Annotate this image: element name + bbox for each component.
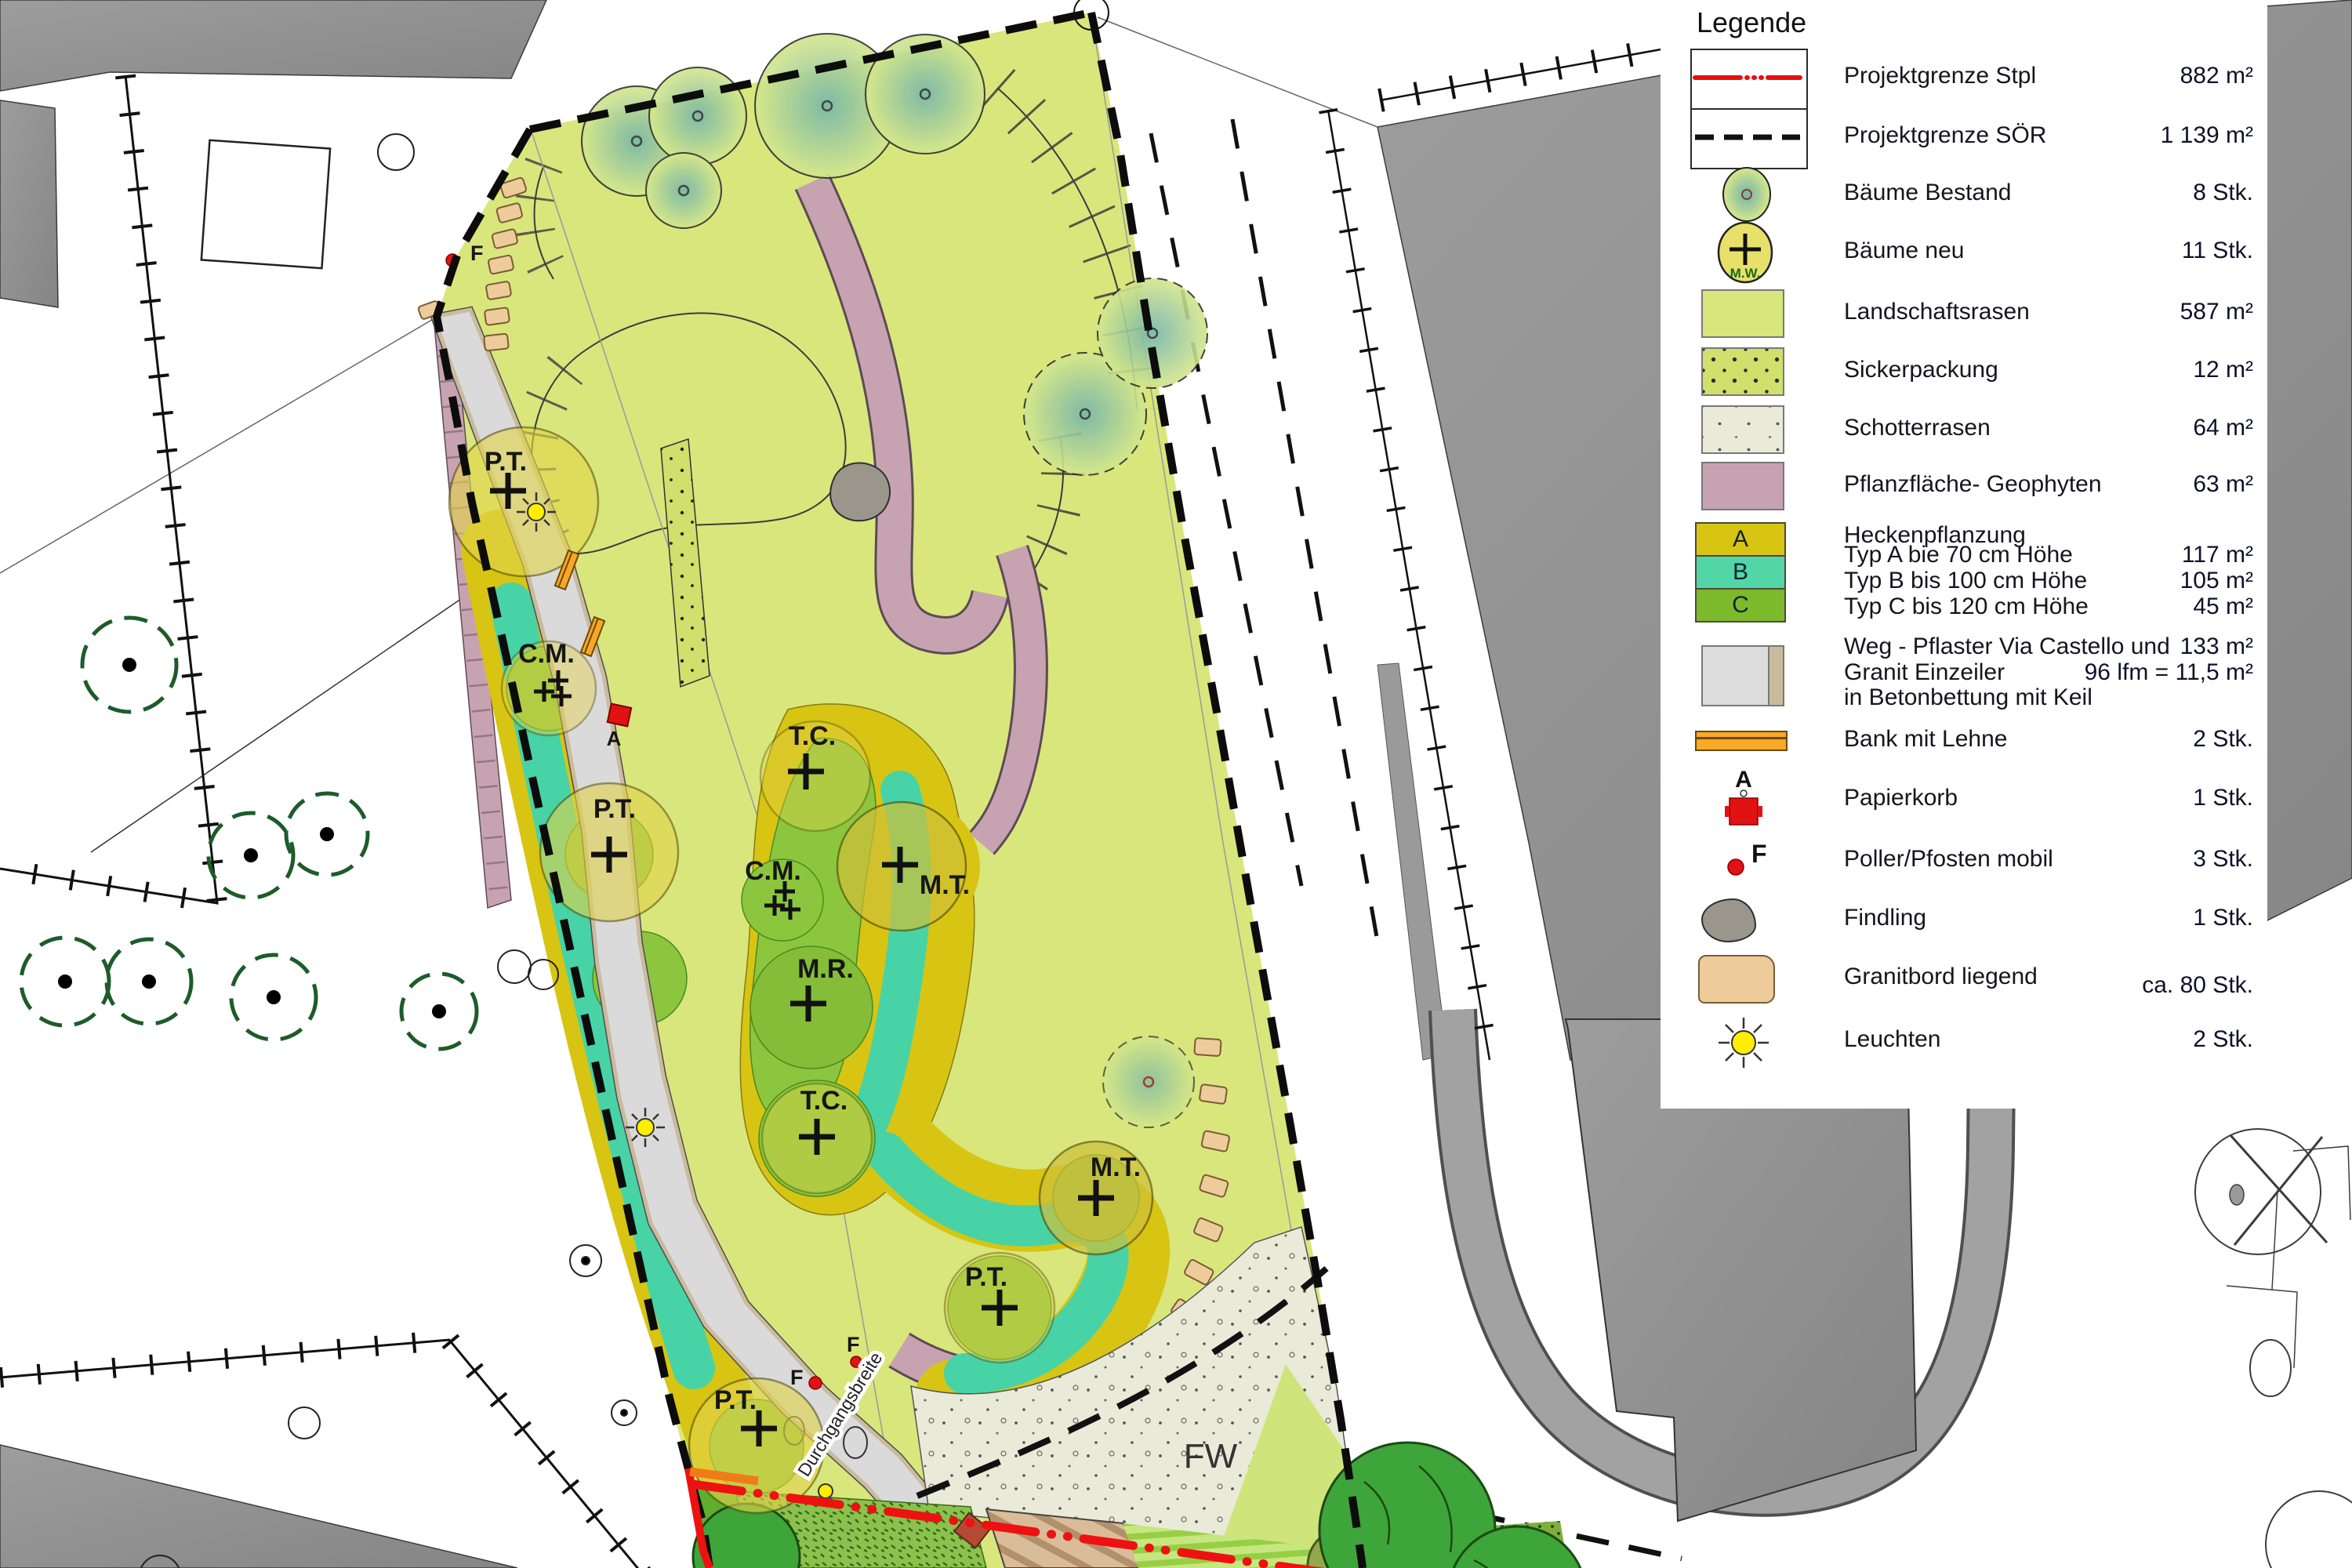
papierkorb-tag: A (1735, 767, 1752, 793)
legend-label: Bäume Bestand (1844, 180, 2011, 206)
street-tree-dot (142, 975, 156, 989)
stpl-line-icon (1690, 49, 1808, 110)
hecke-b-swatch: B (1695, 555, 1786, 590)
granitbord (485, 281, 511, 300)
parcel-line (0, 318, 436, 573)
hecke-c-swatch: C (1695, 588, 1786, 622)
removed-tree (2195, 1129, 2352, 1568)
leuchte-bulb (637, 1119, 654, 1136)
legend-label: Poller/Pfosten mobil (1844, 846, 2053, 873)
tree-label: P.T. (714, 1385, 757, 1415)
legend-label: Granit Einzeiler (1844, 659, 2005, 686)
soer-line-icon (1690, 108, 1808, 169)
legend-value: 2 Stk. (2193, 726, 2253, 753)
poller-tag: F (1751, 840, 1767, 868)
leuchte-legend-icon (1715, 1014, 1772, 1075)
granitbord (485, 307, 510, 325)
granitbord-icon (1698, 955, 1775, 1004)
legend-label: Typ B bis 100 cm Höhe (1844, 568, 2087, 594)
legend-value: 45 m² (2193, 593, 2253, 620)
leuchte-bulb (528, 503, 545, 521)
trash-bin-icon (608, 704, 631, 727)
legend-label: in Betonbettung mit Keil (1844, 684, 2092, 711)
survey-circle (378, 134, 414, 170)
small-light-dot (818, 1484, 833, 1498)
granitbord (484, 333, 509, 350)
legend-label: Findling (1844, 905, 1926, 931)
legend-label: Typ A bie 70 cm Höhe (1844, 542, 2073, 568)
legend-value: 63 m² (2193, 471, 2253, 498)
legend-panel: Legende Projektgrenze Stpl 882 m² Projek… (1661, 0, 2267, 1109)
street-tree-dot (432, 1004, 446, 1018)
building-top-left (0, 0, 546, 91)
fw-label: FW (1184, 1437, 1238, 1475)
bank-icon (1695, 731, 1788, 751)
small-tree-dot (582, 1257, 590, 1265)
granitbord (1200, 1084, 1228, 1104)
granitbord (1194, 1038, 1221, 1056)
legend-value: 96 lfm = 11,5 m² (2085, 659, 2253, 686)
legend-label: Projektgrenze Stpl (1844, 63, 2036, 89)
legend-label: Bank mit Lehne (1844, 726, 2007, 753)
legend-value: 1 Stk. (2193, 905, 2253, 931)
tree-label: T.C. (789, 721, 836, 751)
weg-swatch (1701, 645, 1784, 706)
legend-label: Bäume neu (1844, 238, 1964, 264)
legend-label: Pflanzfläche- Geophyten (1844, 471, 2102, 498)
street-tree-dot (267, 990, 281, 1004)
legend-label: Granitbord liegend (1844, 964, 2038, 990)
tree-label: P.T. (593, 794, 636, 824)
median-strip (1377, 663, 1447, 1060)
papierkorb-label: A (607, 727, 622, 750)
legend-value: 1 Stk. (2193, 785, 2253, 811)
legend-value: 8 Stk. (2193, 180, 2253, 206)
survey-circle (2266, 1491, 2352, 1568)
legend-value: 64 m² (2193, 415, 2253, 441)
poller-label: F (470, 241, 484, 265)
legend-value: 117 m² (2182, 542, 2253, 568)
poller-label: F (847, 1333, 860, 1356)
poller-icon: F (1719, 839, 1781, 887)
survey-circle (498, 950, 531, 983)
tree-label: C.M. (518, 639, 575, 669)
legend-value: 2 Stk. (2193, 1026, 2253, 1053)
hecken-swatch-stack: A B C (1695, 524, 1786, 622)
legend-label: Weg - Pflaster Via Castello und (1844, 633, 2170, 660)
legend-value: 1 139 m² (2161, 122, 2253, 149)
landscape-plan: P.T. C.M. P.T. T.C. C.M. M.T. M.R. T.C. … (0, 0, 2352, 1568)
legend-label: Landschaftsrasen (1844, 299, 2030, 325)
schotter-swatch (1701, 405, 1784, 454)
legend-value: 11 Stk. (2182, 238, 2253, 264)
removed-tree-x (2230, 1135, 2327, 1245)
legend-label: Papierkorb (1844, 785, 1958, 811)
removed-tree-stem (2272, 1190, 2278, 1290)
legend-value: 3 Stk. (2193, 846, 2253, 873)
tree-label: M.T. (920, 870, 970, 900)
poller-dot (809, 1377, 822, 1389)
poller-label: F (790, 1366, 804, 1389)
street-tree-dot (58, 975, 72, 989)
survey-circle (289, 1407, 320, 1439)
hecke-a-swatch: A (1695, 522, 1786, 557)
legend-label: Typ C bis 120 cm Höhe (1844, 593, 2089, 620)
tree-bestand (1103, 1036, 1194, 1127)
findling-icon (1701, 898, 1756, 942)
legend-value: 882 m² (2180, 63, 2253, 89)
rasen-swatch (1701, 289, 1784, 338)
legend-label: Sickerpackung (1844, 357, 1998, 383)
legend-label: Projektgrenze SÖR (1844, 122, 2046, 149)
tree-neu-tag: M.W. (1730, 266, 1761, 281)
legend-value: 587 m² (2180, 299, 2253, 325)
building-bottom-left (0, 1445, 517, 1568)
legend-value: 12 m² (2193, 357, 2253, 383)
legend-value: ca. 80 Stk. (2142, 972, 2253, 999)
geophyten-swatch (1701, 462, 1784, 510)
sicker-swatch (1701, 347, 1784, 396)
tree-bestand (649, 67, 746, 165)
removed-tree-crown (2195, 1129, 2321, 1254)
street-tree-dot (122, 658, 136, 672)
legend-label: Schotterrasen (1844, 415, 1991, 441)
legend-value: 133 m² (2180, 633, 2253, 660)
small-tree-dot (621, 1410, 627, 1416)
survey-ellipse (2250, 1340, 2291, 1396)
tree-label: T.C. (800, 1086, 848, 1116)
street-tree-dot (244, 848, 258, 862)
tree-label: P.T. (965, 1262, 1007, 1292)
tree-label: M.T. (1091, 1152, 1141, 1182)
tree-label: M.R. (797, 954, 854, 984)
legend-value: 105 m² (2180, 568, 2253, 594)
tree-label: P.T. (485, 447, 527, 477)
tree-neu-icon: M.W. (1712, 220, 1778, 289)
tree-bestand-icon (1717, 165, 1777, 228)
building-outline-square (201, 140, 330, 268)
building-left-wedge (0, 100, 58, 307)
papierkorb-icon: A (1719, 767, 1773, 838)
removed-tree-trunk (2230, 1185, 2244, 1205)
street-tree-dot (320, 827, 334, 841)
legend-title: Legende (1697, 6, 1806, 39)
lane-dash-2 (1232, 119, 1377, 937)
tree-label: C.M. (745, 856, 801, 886)
tree-bestand (646, 153, 721, 228)
findling-stone (830, 463, 890, 521)
legend-label: Leuchten (1844, 1026, 1940, 1053)
